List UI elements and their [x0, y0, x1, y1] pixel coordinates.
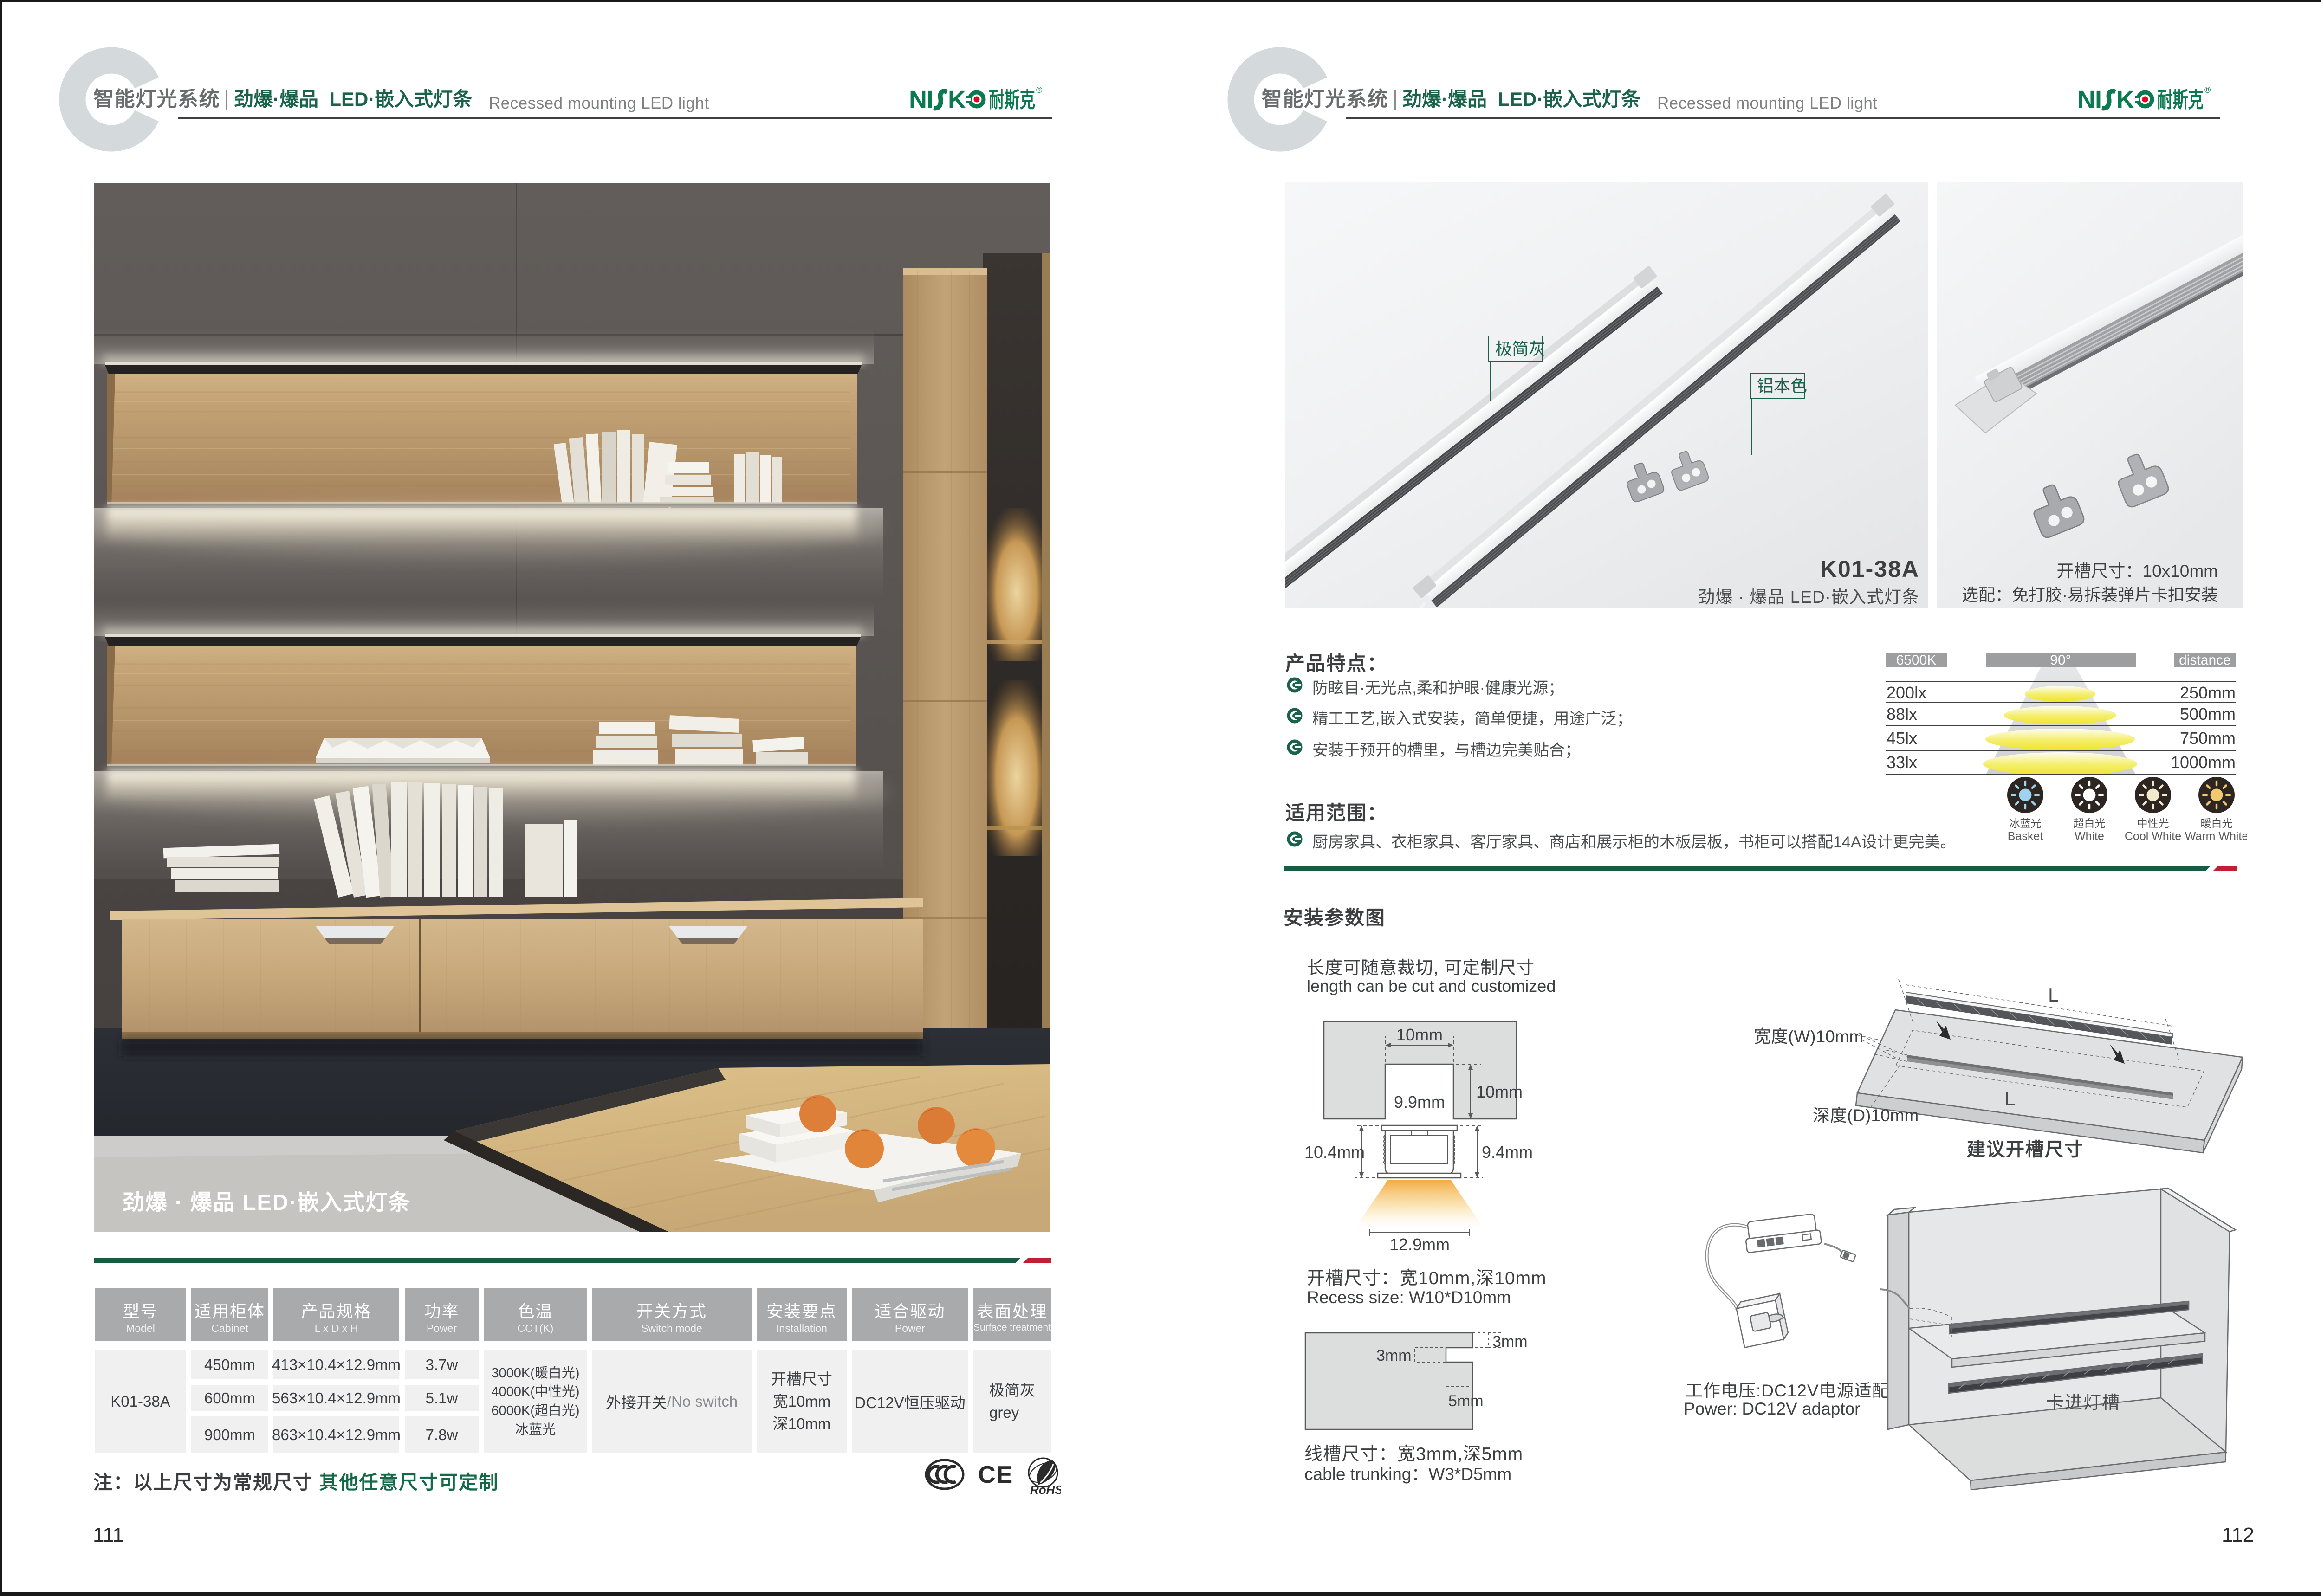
svg-text:宽度(W)10mm: 宽度(W)10mm: [1754, 1027, 1863, 1046]
svg-text:750mm: 750mm: [2180, 729, 2236, 748]
svg-text:33lx: 33lx: [1887, 753, 1917, 772]
svg-text:®: ®: [1036, 85, 1042, 95]
svg-text:K: K: [948, 86, 966, 113]
svg-text:劲爆 · 爆品 LED·嵌入式灯条: 劲爆 · 爆品 LED·嵌入式灯条: [1698, 588, 1919, 607]
svg-text:暖白光: 暖白光: [2201, 817, 2233, 829]
svg-text:200lx: 200lx: [1887, 683, 1926, 702]
svg-text:10.4mm: 10.4mm: [1304, 1143, 1365, 1162]
svg-text:500mm: 500mm: [2180, 704, 2236, 724]
svg-text:NI: NI: [909, 86, 933, 113]
svg-text:6500K: 6500K: [1896, 653, 1937, 668]
svg-text:耐斯克: 耐斯克: [989, 88, 1035, 112]
svg-text:9.9mm: 9.9mm: [1394, 1092, 1445, 1111]
svg-text:超白光: 超白光: [2074, 817, 2106, 829]
svg-text:88lx: 88lx: [1887, 704, 1917, 724]
svg-text:CE: CE: [978, 1461, 1013, 1488]
svg-text:10mm: 10mm: [1396, 1025, 1443, 1044]
svg-text:3mm: 3mm: [1492, 1333, 1528, 1350]
svg-text:Warm White: Warm White: [2185, 830, 2247, 840]
svg-text:卡进灯槽: 卡进灯槽: [2046, 1393, 2120, 1413]
svg-text:耐斯克: 耐斯克: [2157, 88, 2204, 112]
svg-text:RoHS: RoHS: [1030, 1483, 1061, 1497]
svg-text:distance: distance: [2179, 653, 2231, 668]
svg-text:45lx: 45lx: [1887, 729, 1917, 748]
svg-text:5mm: 5mm: [1448, 1392, 1484, 1410]
svg-text:K01-38A: K01-38A: [1820, 556, 1919, 582]
svg-text:K: K: [2116, 86, 2134, 113]
svg-text:9.4mm: 9.4mm: [1482, 1143, 1532, 1162]
svg-text:劲爆 · 爆品 LED·嵌入式灯条: 劲爆 · 爆品 LED·嵌入式灯条: [123, 1190, 411, 1215]
svg-text:90°: 90°: [2050, 653, 2071, 668]
svg-text:12.9mm: 12.9mm: [1389, 1235, 1450, 1253]
svg-text:极简灰: 极简灰: [1495, 339, 1545, 358]
svg-text:开槽尺寸：10x10mm: 开槽尺寸：10x10mm: [2057, 562, 2218, 581]
svg-text:Cool White: Cool White: [2125, 830, 2181, 840]
svg-text:3mm: 3mm: [1376, 1347, 1412, 1364]
svg-text:L: L: [2004, 1088, 2015, 1110]
svg-text:深度(D)10mm: 深度(D)10mm: [1813, 1106, 1919, 1125]
svg-text:L: L: [2048, 984, 2059, 1006]
svg-text:Basket: Basket: [2008, 830, 2043, 840]
svg-text:冰蓝光: 冰蓝光: [2010, 817, 2042, 829]
svg-text:10mm: 10mm: [1476, 1082, 1523, 1101]
svg-text:White: White: [2075, 830, 2104, 840]
svg-text:®: ®: [2204, 85, 2211, 95]
svg-text:NI: NI: [2077, 86, 2101, 113]
svg-text:建议开槽尺寸: 建议开槽尺寸: [1967, 1139, 2084, 1160]
svg-text:250mm: 250mm: [2180, 683, 2236, 702]
svg-text:选配：免打胶·易拆装弹片卡扣安装: 选配：免打胶·易拆装弹片卡扣安装: [1962, 585, 2218, 604]
svg-text:铝本色: 铝本色: [1757, 376, 1807, 395]
svg-text:1000mm: 1000mm: [2171, 753, 2236, 772]
svg-text:中性光: 中性光: [2137, 817, 2169, 829]
